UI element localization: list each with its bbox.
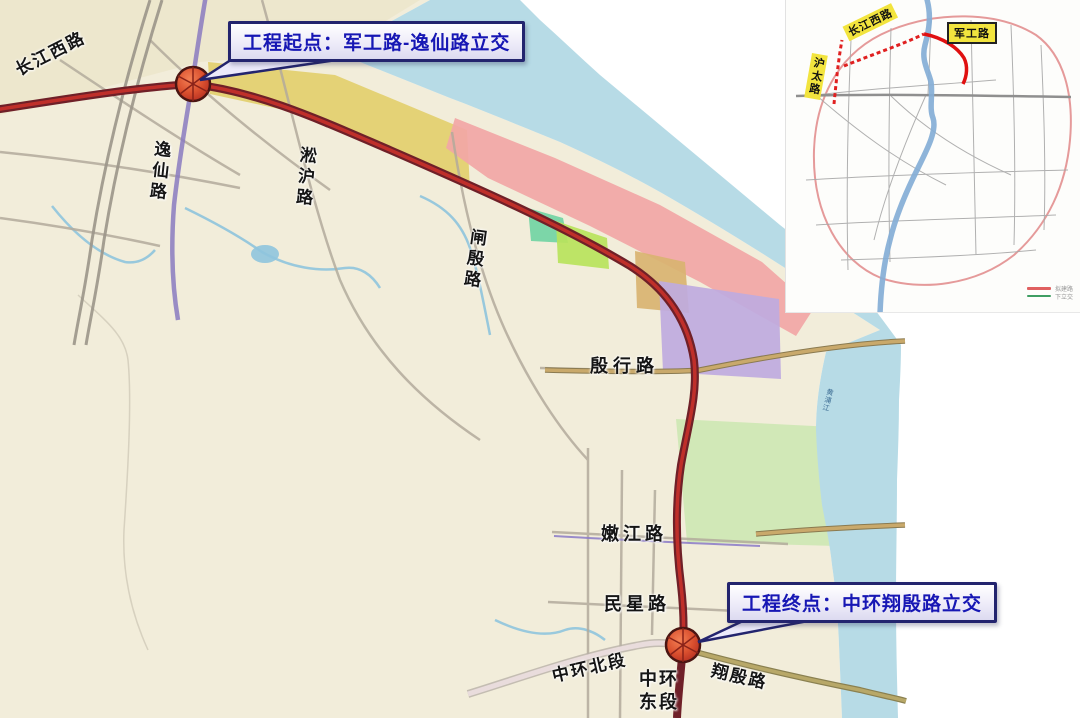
- inset-label-jungong: 军工路: [947, 22, 997, 44]
- inset-road-mesh: [806, 18, 1068, 270]
- legend-line-red: [1027, 287, 1051, 290]
- legend-line-green: [1027, 295, 1051, 297]
- pond: [251, 245, 279, 263]
- inset-route: [834, 34, 967, 104]
- start-interchange-marker: [176, 67, 210, 101]
- legend-row-underpass: 下立交: [1027, 292, 1073, 300]
- end-callout: 工程终点：中环翔殷路立交: [727, 582, 997, 623]
- inset-outer-ring: [814, 16, 1071, 285]
- inset-overview-map: 长江西路 军工路 沪太路 拟建路 下立交: [785, 0, 1080, 313]
- end-interchange-marker: [666, 628, 700, 662]
- label-minxing-road: 民星路: [604, 590, 670, 616]
- inset-legend: 拟建路 下立交: [1027, 284, 1073, 300]
- inset-map-canvas: [786, 0, 1080, 312]
- label-yinhang-road: 殷行路: [590, 352, 659, 378]
- project-map: 长江西路 逸仙路 淞沪路 闸殷路 殷行路 嫩江路 民星路 中环北段 中环东段 翔…: [0, 0, 1080, 718]
- start-callout: 工程起点：军工路-逸仙路立交: [228, 21, 525, 62]
- label-zhonghuan-east: 中环东段: [637, 668, 681, 713]
- inset-river: [880, 0, 934, 312]
- label-nenjiang-road: 嫩江路: [601, 520, 667, 546]
- legend-label-underpass: 下立交: [1055, 292, 1073, 301]
